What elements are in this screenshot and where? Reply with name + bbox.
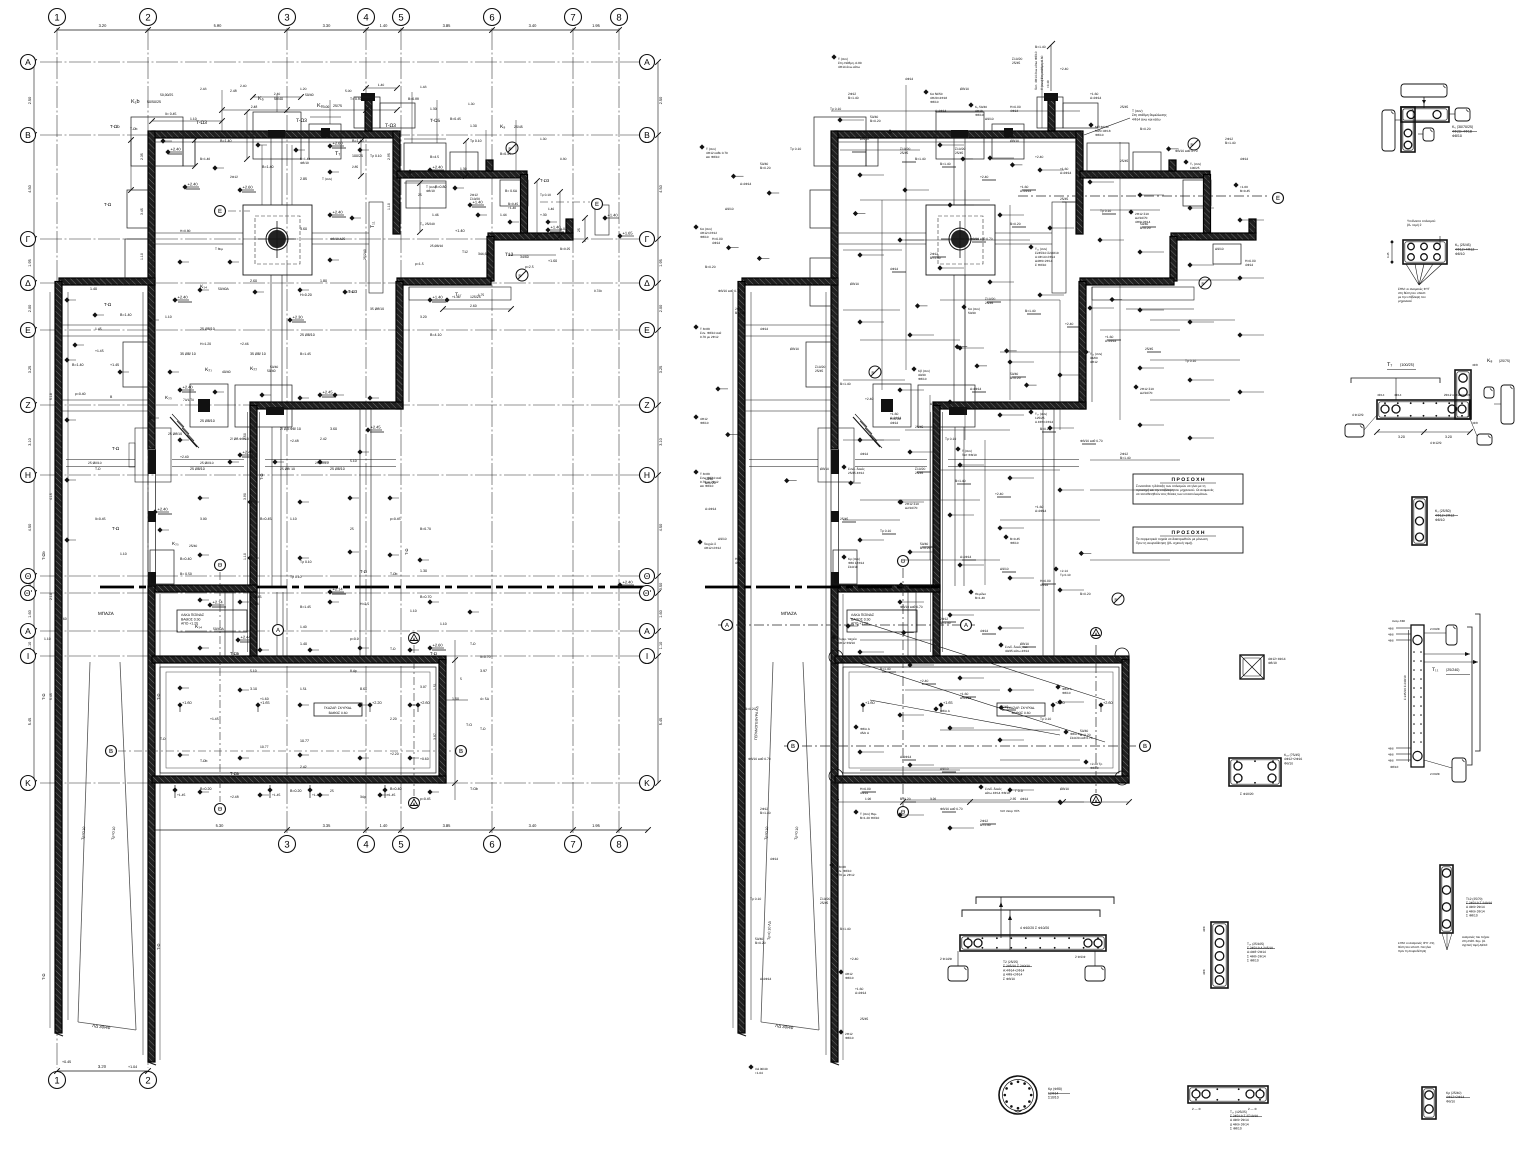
svg-text:35 Ø8/ 10: 35 Ø8/ 10 bbox=[180, 352, 196, 356]
svg-text:2 Φ9/Φ: 2 Φ9/Φ bbox=[1075, 955, 1086, 959]
svg-text:6: 6 bbox=[489, 839, 494, 850]
svg-text:1.60: 1.60 bbox=[659, 610, 663, 617]
svg-text:25/45: 25/45 bbox=[1012, 61, 1020, 65]
svg-text:Σ:245/10 Σ:240/10: Σ:245/10 Σ:240/10 bbox=[1403, 675, 1407, 700]
svg-text:B= 0.50: B= 0.50 bbox=[180, 572, 192, 576]
svg-text:T-Ω: T-Ω bbox=[390, 647, 396, 651]
svg-text:B=0.20: B=0.20 bbox=[290, 789, 302, 793]
svg-text:Φ8/10: Φ8/10 bbox=[1446, 1099, 1455, 1103]
svg-text:+1.60: +1.60 bbox=[865, 701, 875, 705]
svg-text:H=1.20: H=1.20 bbox=[200, 342, 211, 346]
svg-text:T-Ω: T-Ω bbox=[95, 467, 101, 471]
svg-text:25/45: 25/45 bbox=[840, 517, 848, 521]
svg-text:Τρ 0.10: Τρ 0.10 bbox=[540, 193, 551, 197]
svg-text:B=1.40: B=1.40 bbox=[735, 311, 746, 315]
svg-text:25 Ø8/10: 25 Ø8/10 bbox=[200, 419, 215, 423]
svg-text:p=0.9: p=0.9 bbox=[350, 637, 359, 641]
svg-text:2.95: 2.95 bbox=[387, 153, 391, 160]
svg-text:Φ8/α A: Φ8/α A bbox=[940, 709, 951, 713]
svg-text:H=2.5: H=2.5 bbox=[360, 602, 369, 606]
svg-text:+1.45: +1.45 bbox=[95, 349, 104, 353]
svg-text:Θ: Θ bbox=[218, 806, 223, 813]
svg-text:+2.40: +2.40 bbox=[433, 165, 444, 170]
svg-text:Γ: Γ bbox=[26, 234, 31, 244]
svg-text:B=0.20: B=0.20 bbox=[200, 787, 212, 791]
svg-text:2.48: 2.48 bbox=[200, 87, 207, 91]
svg-text:Ø8/10: Ø8/10 bbox=[850, 282, 859, 286]
svg-text:25: 25 bbox=[350, 527, 354, 531]
svg-text:1.48: 1.48 bbox=[420, 85, 427, 89]
svg-text:2.42: 2.42 bbox=[320, 437, 327, 441]
svg-text:B: B bbox=[644, 130, 650, 140]
svg-text:Δ9/10: Δ9/10 bbox=[1215, 247, 1224, 251]
svg-text:T-Ω3: T-Ω3 bbox=[348, 289, 358, 294]
svg-text:B: B bbox=[1143, 743, 1147, 750]
svg-text:25/45 4Φ12: 25/45 4Φ12 bbox=[848, 471, 865, 475]
svg-text:B=1.40: B=1.40 bbox=[1025, 309, 1036, 313]
svg-text:A:4Φ14: A:4Φ14 bbox=[740, 182, 751, 186]
svg-text:Θ: Θ bbox=[25, 571, 32, 581]
svg-text:2/ Ø8-Φ8/10: 2/ Ø8-Φ8/10 bbox=[230, 437, 249, 441]
svg-text:B=4.10: B=4.10 bbox=[430, 333, 442, 337]
svg-text:Φ8/10 καθ 0.70: Φ8/10 καθ 0.70 bbox=[748, 757, 771, 761]
svg-text:4Φ14: 4Φ14 bbox=[890, 421, 898, 425]
svg-text:ΜΠΑΖΑ: ΜΠΑΖΑ bbox=[781, 611, 797, 616]
svg-text:9=0.70: 9=0.70 bbox=[480, 655, 491, 659]
svg-text:A:4Φ14: A:4Φ14 bbox=[1035, 509, 1046, 513]
svg-text:Φ8/10: Φ8/10 bbox=[845, 1036, 854, 1040]
svg-text:B=0.20: B=0.20 bbox=[1010, 222, 1021, 226]
svg-text:H: H bbox=[644, 470, 650, 480]
svg-text:T-Ωb: T-Ωb bbox=[390, 572, 398, 576]
svg-text:3.90: 3.90 bbox=[200, 517, 207, 521]
svg-text:+2.40: +2.40 bbox=[171, 147, 182, 152]
svg-text:Τ θεμ: Τ θεμ bbox=[215, 247, 223, 251]
svg-text:100/25: 100/25 bbox=[352, 154, 363, 158]
svg-text:A:4Φ14: A:4Φ14 bbox=[1060, 171, 1071, 175]
svg-text:4.50: 4.50 bbox=[28, 524, 32, 531]
svg-text:Τρ 0.10: Τρ 0.10 bbox=[1060, 573, 1071, 577]
svg-text:9= 0.45: 9= 0.45 bbox=[165, 112, 177, 116]
svg-text:4Φ14: 4Φ14 bbox=[890, 267, 898, 271]
svg-text:+1.60: +1.60 bbox=[548, 259, 557, 263]
svg-text:Φ8/10: Φ8/10 bbox=[918, 377, 927, 381]
svg-text:Τρ 0.10: Τρ 0.10 bbox=[790, 147, 801, 151]
svg-text:+1.45: +1.45 bbox=[177, 793, 186, 797]
svg-text:25 Ø8/10: 25 Ø8/10 bbox=[200, 461, 214, 465]
svg-text:8: 8 bbox=[616, 839, 621, 850]
svg-text:+2.44: +2.44 bbox=[241, 635, 252, 640]
svg-text:+2.40: +2.40 bbox=[188, 182, 199, 187]
svg-text:+2.40: +2.40 bbox=[865, 397, 874, 401]
svg-text:25: 25 bbox=[418, 193, 422, 197]
svg-text:1: 1 bbox=[54, 1075, 59, 1086]
svg-text:2.40: 2.40 bbox=[274, 92, 281, 96]
svg-text:+2.45: +2.45 bbox=[323, 390, 334, 395]
svg-text:2.60: 2.60 bbox=[470, 304, 477, 308]
svg-text:2Φ12: 2Φ12 bbox=[230, 175, 238, 179]
svg-text:Τ (συν) Στη στάθμη -0.80: Τ (συν) Στη στάθμη -0.80 bbox=[1040, 55, 1044, 90]
svg-text:+2.60: +2.60 bbox=[333, 141, 344, 146]
svg-text:Δ2/10/70: Δ2/10/70 bbox=[905, 506, 918, 510]
svg-text:+2.40: +2.40 bbox=[333, 210, 344, 215]
svg-text:B=0.70: B=0.70 bbox=[420, 527, 431, 531]
svg-text:25/40: 25/40 bbox=[189, 544, 197, 548]
svg-text:2.85: 2.85 bbox=[352, 165, 358, 169]
svg-text:+0.40: +0.40 bbox=[1046, 80, 1050, 88]
svg-text:+2.60: +2.60 bbox=[1103, 701, 1113, 705]
svg-text:4.50: 4.50 bbox=[659, 524, 663, 531]
svg-text:2: 2 bbox=[145, 1075, 150, 1086]
svg-text:B=1.40: B=1.40 bbox=[120, 313, 132, 317]
svg-text:10.77: 10.77 bbox=[300, 739, 309, 743]
svg-text:0.80: 0.80 bbox=[560, 157, 567, 161]
svg-text:Δ9/10: Δ9/10 bbox=[930, 402, 939, 406]
svg-text:4Φ14 άνω και κάτω: 4Φ14 άνω και κάτω bbox=[1132, 117, 1161, 121]
svg-text:(25/75): (25/75) bbox=[1499, 359, 1510, 363]
svg-text:4Φ14: 4Φ14 bbox=[760, 327, 768, 331]
svg-text:Φ8/10: Φ8/10 bbox=[700, 235, 709, 239]
svg-text:Τρ 0.10: Τρ 0.10 bbox=[945, 437, 956, 441]
svg-text:1.45: 1.45 bbox=[95, 327, 102, 331]
svg-text:N: N bbox=[1115, 597, 1118, 602]
svg-text:2.20: 2.20 bbox=[390, 717, 397, 721]
svg-text:4 Φ12/9: 4 Φ12/9 bbox=[1430, 441, 1442, 445]
svg-text:B=0.45: B=0.45 bbox=[1240, 189, 1250, 193]
svg-text:+2.30: +2.30 bbox=[293, 315, 304, 320]
svg-text:5.18: 5.18 bbox=[49, 393, 53, 400]
svg-text:Τρ 0.10: Τρ 0.10 bbox=[880, 529, 891, 533]
svg-text:Β=0.25: Β=0.25 bbox=[560, 247, 570, 251]
svg-text:25/45: 25/45 bbox=[900, 151, 908, 155]
svg-text:Σ10/20: Σ10/20 bbox=[470, 197, 480, 201]
svg-text:2.42: 2.42 bbox=[300, 765, 307, 769]
svg-text:+2.48: +2.48 bbox=[230, 795, 239, 799]
svg-text:1.90: 1.90 bbox=[865, 797, 871, 801]
svg-text:25/45: 25/45 bbox=[1120, 105, 1128, 109]
svg-text:1.30: 1.30 bbox=[460, 167, 467, 171]
svg-text:+1.45: +1.45 bbox=[210, 717, 219, 721]
svg-text:Φ8/10: Φ8/10 bbox=[1284, 761, 1293, 765]
svg-text:1: 1 bbox=[54, 12, 59, 23]
svg-text:+2.14: +2.14 bbox=[333, 587, 344, 592]
svg-text:1.30: 1.30 bbox=[430, 107, 437, 111]
svg-text:+2.40: +2.40 bbox=[178, 295, 189, 300]
svg-text:1.40: 1.40 bbox=[300, 625, 307, 629]
svg-text:T₇: T₇ bbox=[335, 151, 340, 157]
svg-text:4Φ14: 4Φ14 bbox=[905, 77, 913, 81]
svg-text:50/40: 50/40 bbox=[274, 97, 283, 101]
svg-text:4Φ12: 4Φ12 bbox=[905, 589, 913, 593]
svg-text:Σ Φ8/10: Σ Φ8/10 bbox=[1035, 263, 1047, 267]
svg-text:B=0.70: B=0.70 bbox=[420, 595, 432, 599]
svg-text:1.51: 1.51 bbox=[300, 687, 307, 691]
svg-text:2.00: 2.00 bbox=[659, 305, 663, 312]
svg-text:+2.40: +2.40 bbox=[995, 492, 1004, 496]
svg-text:4Φ14 άνω κάτω: 4Φ14 άνω κάτω bbox=[838, 65, 861, 69]
svg-text:4Φ8: 4Φ8 bbox=[1388, 753, 1394, 757]
svg-text:T-Ω: T-Ω bbox=[104, 302, 112, 307]
svg-text:A: A bbox=[644, 57, 650, 67]
svg-text:3.25: 3.25 bbox=[659, 366, 663, 373]
svg-text:4Φ8: 4Φ8 bbox=[1388, 747, 1394, 751]
svg-text:Π Ρ Ο Σ Ο Χ Η: Π Ρ Ο Σ Ο Χ Η bbox=[1171, 530, 1204, 536]
svg-text:3: 3 bbox=[284, 12, 289, 23]
svg-text:Γ: Γ bbox=[645, 234, 650, 244]
svg-text:B: B bbox=[109, 748, 113, 755]
svg-text:+2.40: +2.40 bbox=[180, 455, 189, 459]
svg-text:Τρ 0.10: Τρ 0.10 bbox=[1185, 359, 1196, 363]
svg-text:2.10: 2.10 bbox=[49, 593, 53, 600]
svg-text:Φ8/10: Φ8/10 bbox=[426, 189, 435, 193]
svg-text:B=1.40: B=1.40 bbox=[848, 96, 859, 100]
svg-text:50/40: 50/40 bbox=[968, 311, 976, 315]
svg-text:A 4Φ9+2Φ14: A 4Φ9+2Φ14 bbox=[1035, 420, 1053, 424]
svg-text:2.48: 2.48 bbox=[251, 105, 258, 109]
svg-text:+2.60: +2.60 bbox=[433, 643, 444, 648]
svg-text:25/45: 25/45 bbox=[1145, 347, 1153, 351]
svg-text:Φ8/10 Δ25: Φ8/10 Δ25 bbox=[330, 237, 345, 241]
svg-text:1.10: 1.10 bbox=[387, 203, 391, 210]
svg-text:Δ9/10: Δ9/10 bbox=[725, 207, 734, 211]
svg-text:+1.60: +1.60 bbox=[182, 701, 192, 705]
svg-text:+1.40: +1.40 bbox=[455, 229, 465, 233]
svg-text:5: 5 bbox=[398, 839, 403, 850]
svg-text:Π Ρ Ο Σ Ο Χ Η: Π Ρ Ο Σ Ο Χ Η bbox=[1171, 477, 1204, 483]
svg-text:p=0.45: p=0.45 bbox=[420, 797, 431, 801]
svg-text:3.20: 3.20 bbox=[99, 23, 108, 28]
svg-text:+2.60: +2.60 bbox=[420, 701, 430, 705]
svg-text:Φ8/10: Φ8/10 bbox=[1095, 133, 1104, 137]
svg-text:+2.60: +2.60 bbox=[243, 185, 254, 190]
svg-text:Γ 0-0: Γ 0-0 bbox=[1015, 789, 1023, 793]
svg-text:3.00: 3.00 bbox=[323, 105, 330, 109]
svg-text:Σ10/10: Σ10/10 bbox=[1048, 1096, 1059, 1100]
svg-text:3.45: 3.45 bbox=[140, 208, 144, 215]
svg-text:Φ8/10: Φ8/10 bbox=[1455, 252, 1465, 256]
svg-text:35 Ø8/ 10: 35 Ø8/ 10 bbox=[250, 352, 266, 356]
svg-text:Σ Φ10/20: Σ Φ10/20 bbox=[1240, 792, 1254, 796]
svg-text:T-Ωb: T-Ωb bbox=[41, 550, 46, 560]
svg-text:Ø8/10: Ø8/10 bbox=[820, 467, 829, 471]
svg-text:+2.40: +2.40 bbox=[183, 385, 194, 390]
svg-text:1.30: 1.30 bbox=[470, 124, 477, 128]
svg-text:40/40: 40/40 bbox=[222, 370, 231, 374]
svg-text:1.10: 1.10 bbox=[165, 315, 172, 319]
svg-text:B=0.45: B=0.45 bbox=[500, 152, 511, 156]
svg-text:Δ9/10: Δ9/10 bbox=[940, 767, 949, 771]
svg-text:+2.40: +2.40 bbox=[1060, 67, 1069, 71]
svg-text:4Φ14: 4Φ14 bbox=[1245, 263, 1253, 267]
svg-text:1.60: 1.60 bbox=[28, 610, 32, 617]
svg-text:B=0.40: B=0.40 bbox=[390, 787, 402, 791]
svg-text:T₁₁: T₁₁ bbox=[1432, 667, 1439, 673]
svg-text:K₂₃: K₂₃ bbox=[165, 395, 172, 400]
svg-text:4 Φ12/9: 4 Φ12/9 bbox=[1352, 413, 1364, 417]
svg-text:Τοπ. 4Φ14 άνω κάτω Φ8/10: Τοπ. 4Φ14 άνω κάτω Φ8/10 bbox=[1034, 51, 1038, 90]
svg-text:1.10: 1.10 bbox=[440, 622, 447, 626]
svg-text:+2.40: +2.40 bbox=[850, 957, 859, 961]
svg-text:1.95: 1.95 bbox=[659, 259, 663, 266]
svg-text:1.40: 1.40 bbox=[380, 823, 389, 828]
svg-text:B=1.40: B=1.40 bbox=[940, 162, 951, 166]
svg-text:T-Ω: T-Ω bbox=[466, 723, 472, 727]
svg-text:K₂ (25/50): K₂ (25/50) bbox=[1435, 509, 1451, 513]
svg-text:4Φ8: 4Φ8 bbox=[1388, 633, 1394, 637]
svg-text:E: E bbox=[595, 201, 599, 208]
svg-text:+0.45: +0.45 bbox=[62, 1060, 71, 1064]
svg-text:N: N bbox=[519, 273, 522, 278]
svg-text:5.00: 5.00 bbox=[345, 89, 352, 93]
svg-text:B=1.40: B=1.40 bbox=[915, 157, 926, 161]
svg-text:Δ9/10: Δ9/10 bbox=[1000, 567, 1009, 571]
svg-text:ΓΚΑΖΑΡ. ΣΚΥΡΟΔ.: ΓΚΑΖΑΡ. ΣΚΥΡΟΔ. bbox=[324, 706, 352, 710]
svg-text:+.30: +.30 bbox=[540, 213, 547, 217]
svg-text:3.90: 3.90 bbox=[243, 493, 247, 500]
svg-text:B: B bbox=[25, 130, 31, 140]
svg-text:Δ2/10/70: Δ2/10/70 bbox=[1140, 391, 1153, 395]
svg-text:I: I bbox=[646, 651, 648, 661]
svg-text:B=1.40: B=1.40 bbox=[1035, 45, 1046, 49]
svg-text:K₈: K₈ bbox=[1487, 358, 1492, 364]
svg-text:4Φ14: 4Φ14 bbox=[1020, 797, 1028, 801]
svg-text:K: K bbox=[25, 778, 31, 788]
svg-text:K₂₂: K₂₂ bbox=[250, 366, 257, 372]
svg-text:344,6m: 344,6m bbox=[478, 252, 489, 256]
svg-text:34ρ: 34ρ bbox=[360, 795, 366, 799]
svg-text:Φ8/10 καθ 0.70: Φ8/10 καθ 0.70 bbox=[718, 289, 741, 293]
svg-text:100/25: 100/25 bbox=[1190, 166, 1200, 170]
svg-text:Τρ 0.10: Τρ 0.10 bbox=[300, 560, 312, 564]
svg-text:+2.48: +2.48 bbox=[290, 439, 299, 443]
svg-text:T-Ωb: T-Ωb bbox=[130, 127, 138, 131]
svg-text:Φ8/10: Φ8/10 bbox=[1090, 766, 1099, 770]
svg-text:ΒΑΘΟΣ 0.60: ΒΑΘΟΣ 0.60 bbox=[329, 711, 348, 715]
svg-text:Θ: Θ bbox=[218, 562, 223, 569]
svg-text:25/45: 25/45 bbox=[1060, 659, 1068, 663]
svg-text:βλ. τομή 2: βλ. τομή 2 bbox=[1407, 223, 1422, 227]
svg-text:+1.40: +1.40 bbox=[433, 295, 444, 300]
svg-text:N: N bbox=[872, 370, 875, 375]
svg-text:4.50: 4.50 bbox=[28, 185, 32, 192]
svg-text:Φ8/10: Φ8/10 bbox=[930, 100, 939, 104]
svg-text:E: E bbox=[25, 325, 31, 335]
svg-text:5.30: 5.30 bbox=[216, 823, 225, 828]
svg-text:Φ8/10: Φ8/10 bbox=[700, 421, 709, 425]
svg-text:Τρ 0.10: Τρ 0.10 bbox=[370, 154, 382, 158]
svg-text:A:4Φ14: A:4Φ14 bbox=[1180, 235, 1191, 239]
svg-text:A: A bbox=[644, 626, 650, 636]
svg-text:2 — Φ: 2 — Φ bbox=[1192, 1107, 1201, 1111]
svg-text:E: E bbox=[1276, 195, 1280, 202]
svg-text:H: H bbox=[25, 470, 31, 480]
svg-text:1.44: 1.44 bbox=[500, 213, 507, 217]
svg-text:35 Ø8/10: 35 Ø8/10 bbox=[370, 307, 384, 311]
svg-text:4Φ8: 4Φ8 bbox=[1388, 639, 1394, 643]
svg-text:+1.65: +1.65 bbox=[260, 701, 270, 705]
svg-text:Φ8/10 καθ 0.70: Φ8/10 καθ 0.70 bbox=[970, 237, 993, 241]
svg-text:Θ': Θ' bbox=[24, 588, 33, 598]
svg-text:Δ: Δ bbox=[25, 278, 31, 288]
svg-text:2/ Ø8-Φ8/ 10: 2/ Ø8-Φ8/ 10 bbox=[280, 427, 301, 431]
svg-text:πριν τη σκυροδέτηση: πριν τη σκυροδέτηση bbox=[1398, 949, 1427, 953]
svg-text:T-Ω3: T-Ω3 bbox=[296, 118, 307, 124]
svg-text:Η=0.80: Η=0.80 bbox=[180, 229, 191, 233]
svg-text:ΓΚΑΖΑΡ. ΣΚΥΡΟΔ.: ΓΚΑΖΑΡ. ΣΚΥΡΟΔ. bbox=[1007, 706, 1035, 710]
svg-text:N: N bbox=[509, 146, 512, 151]
svg-text:1.95: 1.95 bbox=[592, 823, 601, 828]
svg-text:+1.40: +1.40 bbox=[508, 206, 516, 210]
svg-text:+1.45: +1.45 bbox=[272, 793, 281, 797]
svg-text:5.10: 5.10 bbox=[250, 669, 257, 673]
svg-text:8.60: 8.60 bbox=[360, 687, 367, 691]
svg-text:1.40: 1.40 bbox=[378, 83, 385, 87]
svg-text:1.30: 1.30 bbox=[420, 569, 427, 573]
svg-text:B: B bbox=[459, 748, 463, 755]
svg-text:Φ8/10 καθ 0.70: Φ8/10 καθ 0.70 bbox=[1175, 149, 1198, 153]
svg-text:Φ8/10: Φ8/10 bbox=[1435, 518, 1445, 522]
svg-text:2.48: 2.48 bbox=[230, 89, 237, 93]
svg-text:1.80: 1.80 bbox=[320, 279, 327, 283]
svg-text:p=2.5: p=2.5 bbox=[525, 265, 534, 269]
svg-text:T₁₇: T₁₇ bbox=[455, 292, 462, 298]
svg-text:T-Ωb: T-Ωb bbox=[230, 651, 240, 656]
svg-text:+0.60: +0.60 bbox=[420, 757, 429, 761]
svg-text:K₉: K₉ bbox=[500, 124, 505, 130]
svg-text:Β=1.40: Β=1.40 bbox=[200, 157, 210, 161]
svg-text:3.97: 3.97 bbox=[433, 733, 437, 740]
svg-text:0.50: 0.50 bbox=[659, 583, 663, 590]
svg-text:A:4Φ14: A:4Φ14 bbox=[855, 991, 866, 995]
svg-text:25/45: 25/45 bbox=[955, 151, 963, 155]
svg-text:Η=0.20: Η=0.20 bbox=[300, 293, 312, 297]
svg-text:κάτω 4Φ14 Φ8/10: κάτω 4Φ14 Φ8/10 bbox=[985, 791, 1010, 795]
svg-text:0.70 με 2Φ12: 0.70 με 2Φ12 bbox=[836, 873, 855, 877]
svg-text:3.35: 3.35 bbox=[323, 823, 332, 828]
svg-text:4Φ8: 4Φ8 bbox=[1472, 363, 1478, 367]
svg-text:Φ8/10: Φ8/10 bbox=[300, 161, 309, 165]
svg-text:25/240: 25/240 bbox=[363, 249, 367, 260]
svg-text:A:4Φ14: A:4Φ14 bbox=[970, 387, 981, 391]
svg-text:8: 8 bbox=[616, 12, 621, 23]
svg-text:Δ9/10: Δ9/10 bbox=[718, 537, 727, 541]
svg-text:B=1.45: B=1.45 bbox=[300, 352, 311, 356]
svg-text:B=0.80: B=0.80 bbox=[435, 185, 447, 189]
svg-text:T12: T12 bbox=[505, 252, 514, 258]
svg-text:3.10: 3.10 bbox=[28, 438, 32, 445]
svg-text:Ø8/10: Ø8/10 bbox=[1010, 139, 1019, 143]
svg-text:3.10: 3.10 bbox=[250, 687, 257, 691]
svg-text:+1.40: +1.40 bbox=[608, 213, 619, 218]
svg-text:25/45: 25/45 bbox=[1060, 197, 1068, 201]
svg-text:Αναμ 4Φ8: Αναμ 4Φ8 bbox=[1392, 619, 1405, 623]
svg-text:5.45: 5.45 bbox=[28, 718, 32, 725]
svg-text:T-Ω: T-Ω bbox=[112, 526, 120, 531]
svg-text:8.4p: 8.4p bbox=[350, 669, 357, 673]
svg-text:2 — Φ: 2 — Φ bbox=[1248, 1107, 1257, 1111]
svg-text:Τρ 0.10: Τρ 0.10 bbox=[1100, 209, 1111, 213]
svg-text:4: 4 bbox=[363, 12, 368, 23]
svg-text:Φ8/10 καθ 0.70: Φ8/10 καθ 0.70 bbox=[1080, 439, 1103, 443]
svg-text:+2.40: +2.40 bbox=[623, 580, 634, 585]
svg-text:1.10: 1.10 bbox=[120, 552, 127, 556]
svg-text:3.85: 3.85 bbox=[443, 823, 452, 828]
svg-text:Φ8/10 καθ 0.70: Φ8/10 καθ 0.70 bbox=[940, 807, 963, 811]
svg-text:4Φ14: 4Φ14 bbox=[712, 241, 720, 245]
svg-text:2: 2 bbox=[145, 12, 150, 23]
svg-text:25/45: 25/45 bbox=[820, 901, 828, 905]
svg-text:3.97: 3.97 bbox=[480, 669, 487, 673]
